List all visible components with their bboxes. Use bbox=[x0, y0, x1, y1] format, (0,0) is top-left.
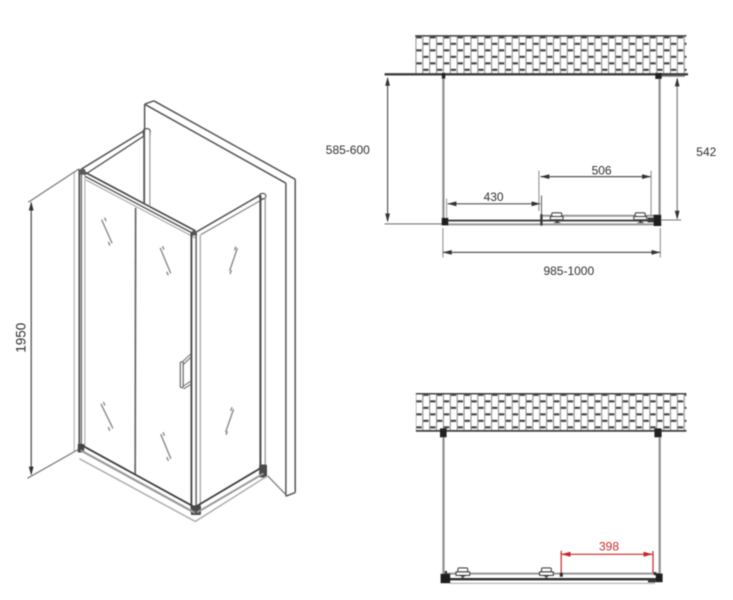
svg-text:585-600: 585-600 bbox=[326, 143, 370, 157]
svg-text:506: 506 bbox=[592, 163, 612, 177]
svg-text:398: 398 bbox=[599, 539, 619, 553]
svg-text:1950: 1950 bbox=[13, 323, 28, 353]
svg-text:430: 430 bbox=[484, 190, 504, 204]
svg-text:985-1000: 985-1000 bbox=[543, 264, 594, 278]
svg-text:542: 542 bbox=[696, 145, 716, 159]
